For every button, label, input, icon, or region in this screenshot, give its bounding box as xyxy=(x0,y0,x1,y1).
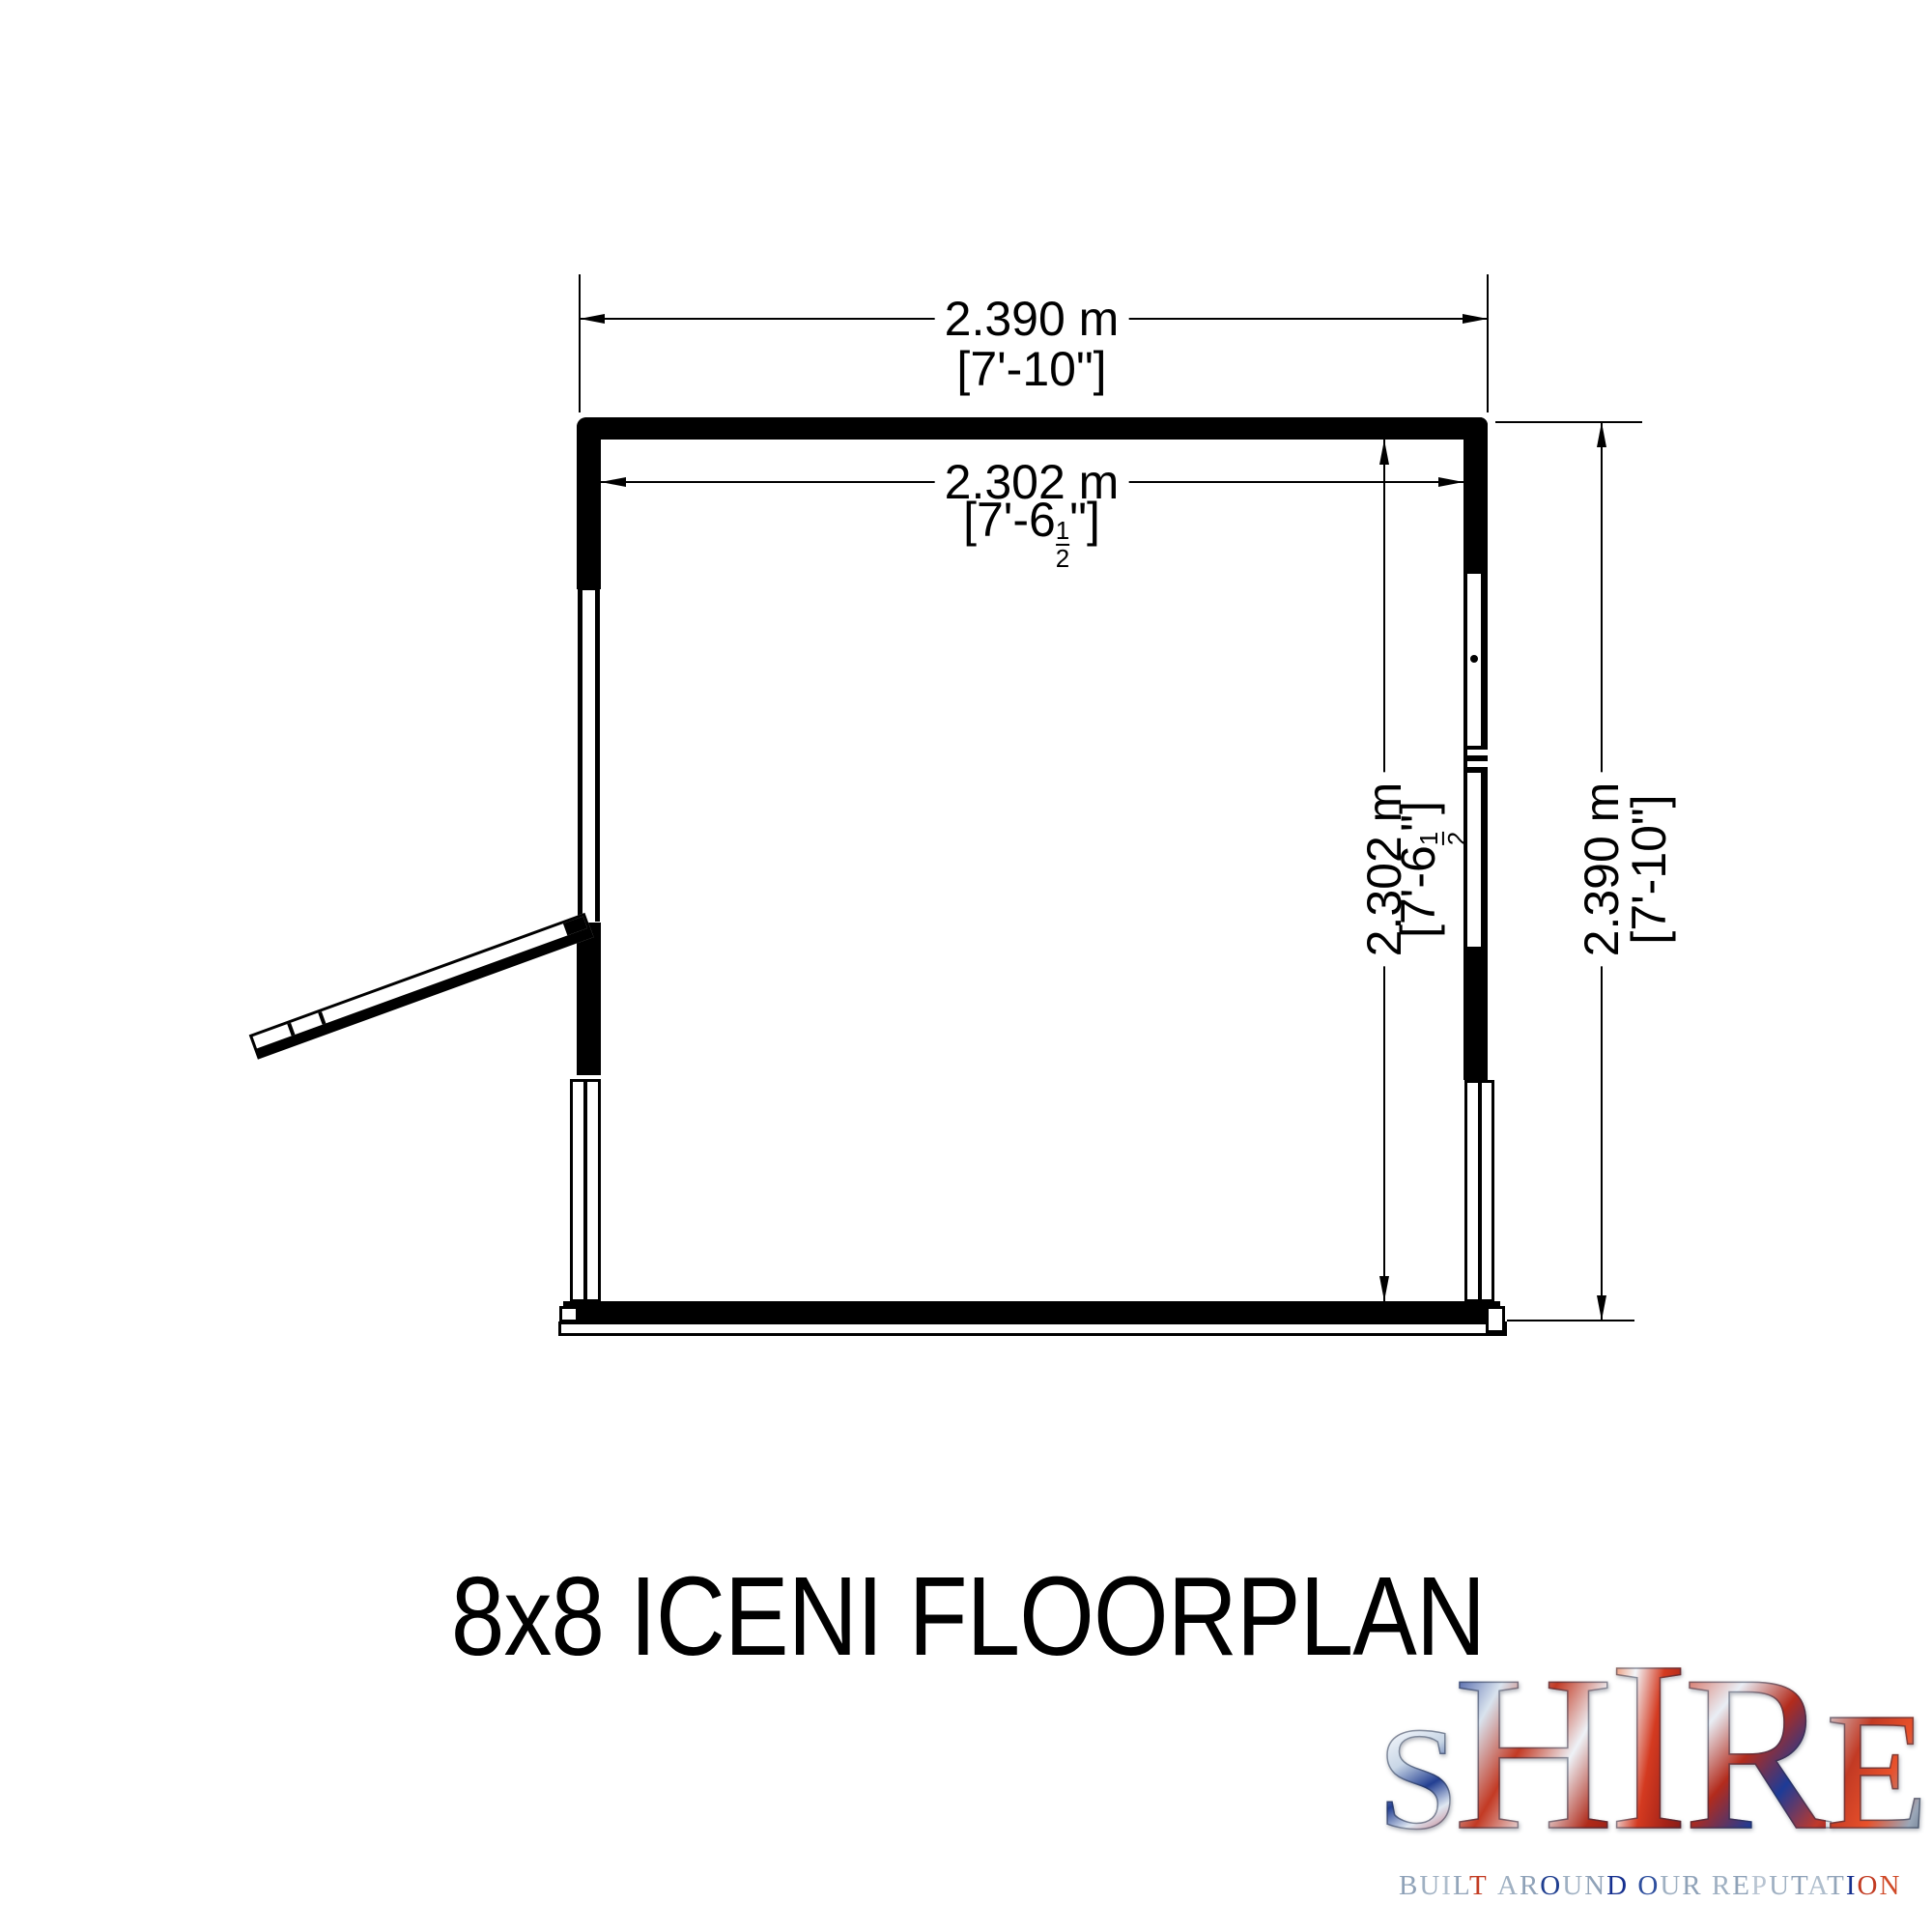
tagline-letter: O xyxy=(1858,1870,1880,1901)
right-window-slot-lower xyxy=(1467,773,1481,947)
base-plate-notch-right xyxy=(1486,1306,1505,1333)
tagline-letter: T xyxy=(1827,1870,1846,1901)
tagline-letter: D xyxy=(1606,1870,1629,1901)
dim-arrow-up xyxy=(1379,440,1389,465)
tagline-letter: B xyxy=(1399,1870,1419,1901)
shire-logo-tagline: BUILT AROUND OUR REPUTATION xyxy=(1399,1870,1901,1902)
right-window-divider-band xyxy=(1467,750,1488,755)
right-lower-panel-mid-line xyxy=(1478,1080,1482,1302)
tagline-letter: I xyxy=(1846,1870,1858,1901)
extension-line-top-right xyxy=(1487,274,1489,412)
tagline-letter: A xyxy=(1807,1870,1827,1901)
shire-logo: SHIRE BUILT AROUND OUR REPUTATION xyxy=(1399,1631,1901,1911)
logo-letter-S: S xyxy=(1378,1709,1454,1848)
tagline-letter: T xyxy=(1469,1870,1489,1901)
page-title: 8x8 ICENI FLOORPLAN xyxy=(367,1551,1569,1681)
tagline-letter: U xyxy=(1769,1870,1791,1901)
left-lower-panel-mid-line xyxy=(583,1079,587,1302)
tagline-letter xyxy=(1703,1870,1712,1901)
dim-inner-height-imperial: [7'-612"] xyxy=(1392,791,1469,948)
open-door-leaf xyxy=(249,913,594,1060)
tagline-letter: U xyxy=(1419,1870,1441,1901)
tagline-letter: T xyxy=(1791,1870,1807,1901)
extension-line-top-left xyxy=(579,274,581,412)
tagline-letter: U xyxy=(1660,1870,1682,1901)
fraction: 12 xyxy=(1056,518,1069,571)
tagline-letter: O xyxy=(1540,1870,1562,1901)
dim-arrow-right xyxy=(1438,477,1463,487)
door-hinge-block xyxy=(563,917,587,936)
tagline-letter xyxy=(1629,1870,1637,1901)
left-window-cap xyxy=(578,583,600,590)
tagline-letter: I xyxy=(1441,1870,1453,1901)
door-handle-dot xyxy=(1470,655,1478,663)
page-title-text: 8x8 ICENI FLOORPLAN xyxy=(451,1551,1485,1681)
dim-top-metric: 2.390 m xyxy=(935,293,1129,345)
logo-letter-R: R xyxy=(1683,1648,1825,1860)
shire-logo-word: SHIRE xyxy=(1399,1631,1901,1872)
extension-line-right-bottom xyxy=(1507,1320,1634,1321)
left-window-outer-line xyxy=(578,590,582,922)
dim-outer-height-metric: 2.390 m xyxy=(1576,773,1628,967)
dim-arrow-up xyxy=(1597,422,1606,447)
bottom-wall xyxy=(563,1301,1500,1321)
tagline-letter: A xyxy=(1497,1870,1520,1901)
tagline-letter: U xyxy=(1562,1870,1584,1901)
dim-arrow-down xyxy=(1379,1276,1389,1301)
tagline-letter: E xyxy=(1732,1870,1751,1901)
left-door-jamb xyxy=(577,923,601,1075)
logo-letter-E: E xyxy=(1826,1691,1922,1851)
tagline-letter: O xyxy=(1637,1870,1660,1901)
dim-arrow-left xyxy=(580,314,605,324)
extension-line-right-top xyxy=(1495,421,1642,423)
floorplan-page: 2.390 m [7'-10"] 2.302 m [7'-612"] 2.302… xyxy=(0,0,1932,1932)
tagline-letter: P xyxy=(1751,1870,1769,1901)
left-wall-upper-segment xyxy=(577,417,601,589)
door-panel-joint xyxy=(318,1011,326,1025)
fraction: 12 xyxy=(1416,832,1469,845)
tagline-letter: R xyxy=(1520,1870,1540,1901)
tagline-letter: N xyxy=(1584,1870,1606,1901)
left-window-inner-line xyxy=(595,590,600,922)
tagline-letter: R xyxy=(1712,1870,1732,1901)
base-plate-strip xyxy=(558,1321,1507,1336)
tagline-letter: L xyxy=(1453,1870,1469,1901)
tagline-letter: N xyxy=(1880,1870,1902,1901)
top-wall xyxy=(577,417,1488,440)
right-window-divider-band xyxy=(1467,761,1488,767)
door-panel-joint xyxy=(287,1023,295,1037)
dim-outer-height-imperial: [7'-10"] xyxy=(1623,784,1675,953)
logo-letter-I: I xyxy=(1608,1631,1684,1861)
right-wall-segment xyxy=(1463,417,1488,1080)
dim-arrow-right xyxy=(1463,314,1488,324)
logo-letter-H: H xyxy=(1453,1648,1607,1860)
base-plate-notch-left xyxy=(559,1306,579,1322)
dim-arrow-left xyxy=(601,477,626,487)
dim-arrow-down xyxy=(1597,1295,1606,1321)
dim-inner-width-imperial: [7'-612"] xyxy=(953,494,1110,571)
tagline-letter xyxy=(1489,1870,1497,1901)
tagline-letter: R xyxy=(1682,1870,1702,1901)
dim-top-imperial: [7'-10"] xyxy=(947,343,1116,395)
